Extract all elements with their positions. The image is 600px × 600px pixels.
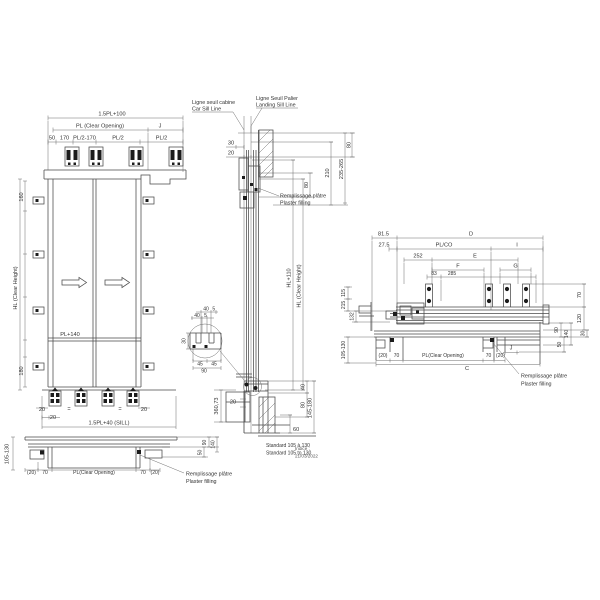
dim-140-right: 140	[564, 330, 570, 339]
dim-115: 115	[341, 289, 347, 297]
hanger-roller-dot	[505, 299, 509, 303]
dim-20-top: 20	[228, 151, 234, 157]
dim-pl140: PL+140	[60, 332, 79, 338]
dim-170: 170	[60, 136, 69, 142]
dim-105-130: 105-130	[341, 341, 347, 360]
equal-mark-2: =	[118, 407, 121, 413]
dim-20-right: 20	[141, 407, 147, 413]
car-sill-line-label-fr: Ligne seuil cabine	[192, 100, 235, 106]
dim-120: 120	[577, 314, 583, 323]
revision-label: Indice :	[295, 446, 310, 451]
hanger-roller-dot	[487, 299, 491, 303]
dim-90-right: 90	[554, 327, 560, 333]
landing-sill-dot	[254, 386, 258, 390]
landing-sill-line-label-en: Landing Sill Line	[256, 103, 296, 109]
dim-pl2-170: PL/2-170	[73, 136, 96, 142]
dim-J-plan: J	[510, 346, 513, 352]
dim-160: 160	[19, 192, 25, 201]
dim-83: 83	[431, 271, 437, 277]
detail-dim-45b: 45	[211, 362, 217, 368]
dim-sill-width: 1.5PL+40 (SILL)	[89, 421, 130, 427]
dim-285: 285	[448, 271, 457, 277]
dim-j: J	[159, 124, 162, 130]
dim-145-180: 145-180	[308, 398, 314, 419]
detail-dim-5a: 5	[212, 307, 215, 313]
dim-70-right: 70	[577, 292, 583, 298]
dim-pl2-b: PL/2	[156, 136, 168, 142]
dim-252: 252	[413, 254, 422, 260]
dim-80-inner: 80	[304, 182, 310, 188]
dim-20-bottom: 20	[230, 400, 236, 406]
dim-40-bottom: 40	[301, 384, 307, 390]
dim-hl110: HL+110	[287, 268, 293, 287]
dim-210: 210	[325, 168, 331, 177]
dim-clear-opening: PL (Clear Opening)	[76, 124, 124, 130]
landing-sill-line-label-fr: Ligne Seuil Palier	[256, 96, 298, 102]
dim-pl2-a: PL/2	[112, 136, 124, 142]
dim-p20-bottom-right: (20)	[496, 353, 505, 359]
car-sill-dot	[245, 383, 249, 387]
detail-dim-40b: 40	[194, 313, 200, 319]
dim-180: 180	[19, 366, 25, 375]
dim-clear-opening-bottom: PL(Clear Opening)	[422, 353, 464, 359]
dim-140: 140	[211, 440, 217, 449]
dim-p20-right: (20)	[151, 470, 160, 476]
dim-81-5: 81.5	[378, 232, 389, 238]
drawing-sheet: 1.5PL+100 PL (Clear Opening) J 50 170 PL…	[0, 0, 600, 600]
plan-plaster-note-en: Plaster filling	[521, 382, 552, 388]
dim-30-right: 30	[581, 331, 587, 337]
dim-50: 50	[49, 136, 55, 142]
dim-F: F	[456, 264, 460, 270]
hanger-roller-dot	[427, 299, 431, 303]
hanger-roller-dot	[505, 287, 509, 291]
section-plaster-note-fr: Remplissage plâtre	[280, 194, 326, 200]
dim-215: 215	[341, 301, 347, 310]
dim-90: 90	[202, 440, 208, 446]
dim-20-left: 20	[39, 407, 45, 413]
plaster-filling-note-fr: Remplissage plâtre	[186, 472, 232, 478]
car-sill-line-label-en: Car Sill Line	[192, 107, 221, 113]
equal-mark-1: =	[67, 407, 70, 413]
dim-G: G	[513, 264, 517, 270]
dim-20-sill: 20	[50, 415, 56, 421]
detail-dim-40a: 40	[203, 307, 209, 313]
hanger-roller-dot	[524, 287, 528, 291]
dim-80-bottom: 80	[301, 402, 307, 408]
dim-70-right: 70	[140, 470, 146, 476]
plaster-filling-note-en: Plaster filling	[186, 479, 217, 485]
dim-50: 50	[198, 450, 204, 456]
dim-50-right: 50	[557, 342, 563, 348]
dim-27-5: 27.5	[379, 243, 390, 249]
detail-dim-45a: 45	[197, 362, 203, 368]
dim-C: C	[465, 366, 469, 372]
dim-overall-width: 1.5PL+100	[98, 112, 125, 118]
dim-80-top: 80	[347, 142, 353, 148]
dim-235-265: 235-265	[339, 159, 345, 180]
hanger-roller-dot	[487, 287, 491, 291]
elevator-door-drawing: 1.5PL+100 PL (Clear Opening) J 50 170 PL…	[0, 0, 600, 600]
dim-clear-opening-plan: PL(Clear Opening)	[73, 470, 115, 476]
hanger-roller-dot	[524, 299, 528, 303]
revision-date: 21/03/2022	[295, 454, 318, 459]
dim-60: 60	[293, 427, 299, 433]
detail-dim-30: 30	[182, 338, 188, 344]
dim-clear-height: HL (Clear Height)	[13, 266, 19, 309]
plan-plaster-note-fr: Remplissage plâtre	[521, 374, 567, 380]
detail-dim-90: 90	[201, 369, 207, 375]
hanger-roller-dot	[427, 287, 431, 291]
dim-plco: PL/CO	[436, 243, 453, 249]
dim-D: D	[469, 232, 473, 238]
section-plaster-note-en: Plaster filling	[280, 201, 311, 207]
dim-30-top: 30	[228, 141, 234, 147]
dim-depth-105-130: 105-130	[5, 444, 11, 465]
dim-p20-left: (20)	[27, 470, 36, 476]
dim-hl-clear-height: HL (Clear Height)	[297, 264, 303, 307]
dim-132: 132	[350, 312, 356, 321]
dim-360-73: 360,73	[214, 397, 220, 414]
dim-p20-bottom-left: (20)	[379, 353, 388, 359]
dim-E: E	[473, 254, 477, 260]
dim-70-left: 70	[42, 470, 48, 476]
detail-dim-5b: 5	[204, 313, 207, 319]
dim-70-bottom-left: 70	[394, 353, 400, 359]
dim-70-bottom-right: 70	[486, 353, 492, 359]
